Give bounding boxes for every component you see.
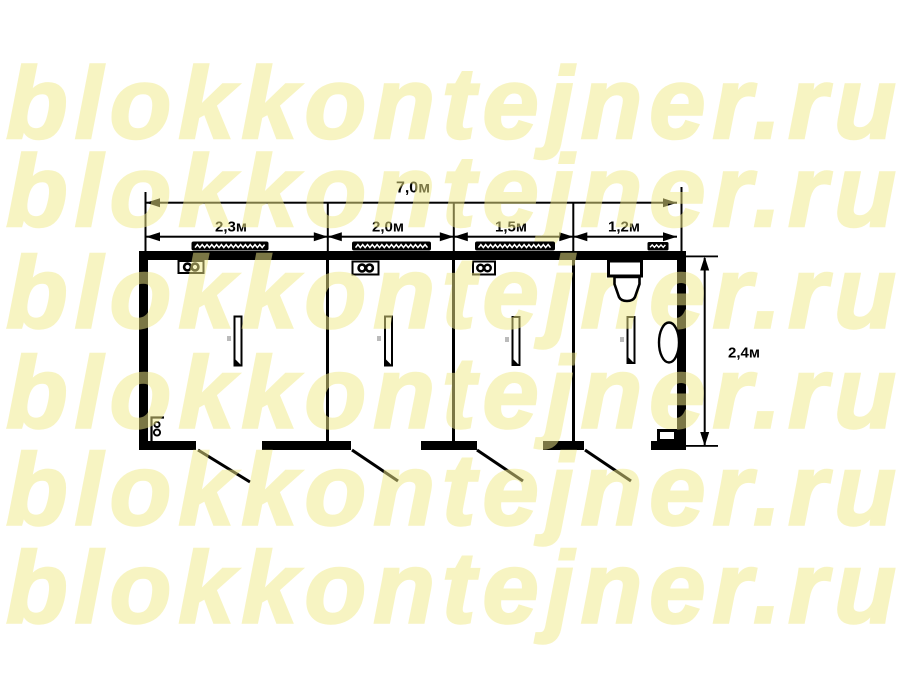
svg-text:blokkontejner.ru: blokkontejner.ru	[6, 533, 896, 645]
svg-text:blokkontejner.ru: blokkontejner.ru	[6, 338, 896, 450]
svg-text:blokkontejner.ru: blokkontejner.ru	[6, 238, 896, 350]
svg-text:blokkontejner.ru: blokkontejner.ru	[6, 435, 896, 547]
svg-text:blokkontejner.ru: blokkontejner.ru	[6, 136, 896, 248]
